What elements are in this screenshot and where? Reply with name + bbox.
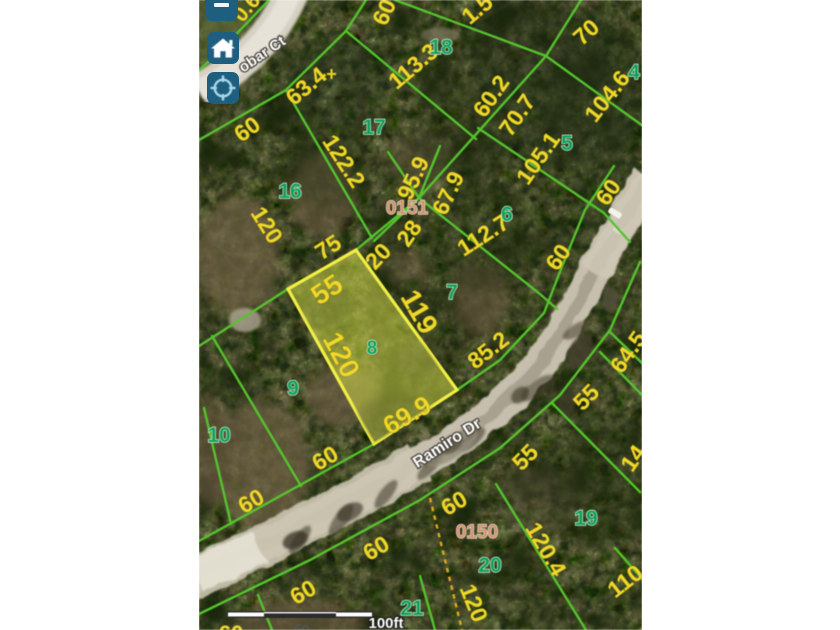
svg-text:5: 5 <box>561 132 573 155</box>
svg-text:16: 16 <box>278 180 301 203</box>
svg-text:7: 7 <box>446 281 458 304</box>
svg-text:20: 20 <box>478 554 501 577</box>
svg-text:0151: 0151 <box>386 198 429 219</box>
svg-text:4: 4 <box>628 61 640 84</box>
svg-text:6: 6 <box>501 203 513 226</box>
svg-text:10: 10 <box>207 424 230 447</box>
svg-text:0150: 0150 <box>456 522 498 543</box>
svg-text:60: 60 <box>219 621 243 630</box>
svg-text:8: 8 <box>367 338 378 359</box>
svg-text:17: 17 <box>362 116 385 139</box>
svg-text:18: 18 <box>429 36 453 59</box>
svg-text:50: 50 <box>294 621 310 630</box>
svg-text:100ft: 100ft <box>368 615 403 630</box>
svg-text:21: 21 <box>400 597 424 620</box>
svg-text:19: 19 <box>574 507 597 530</box>
svg-text:9: 9 <box>287 377 299 400</box>
